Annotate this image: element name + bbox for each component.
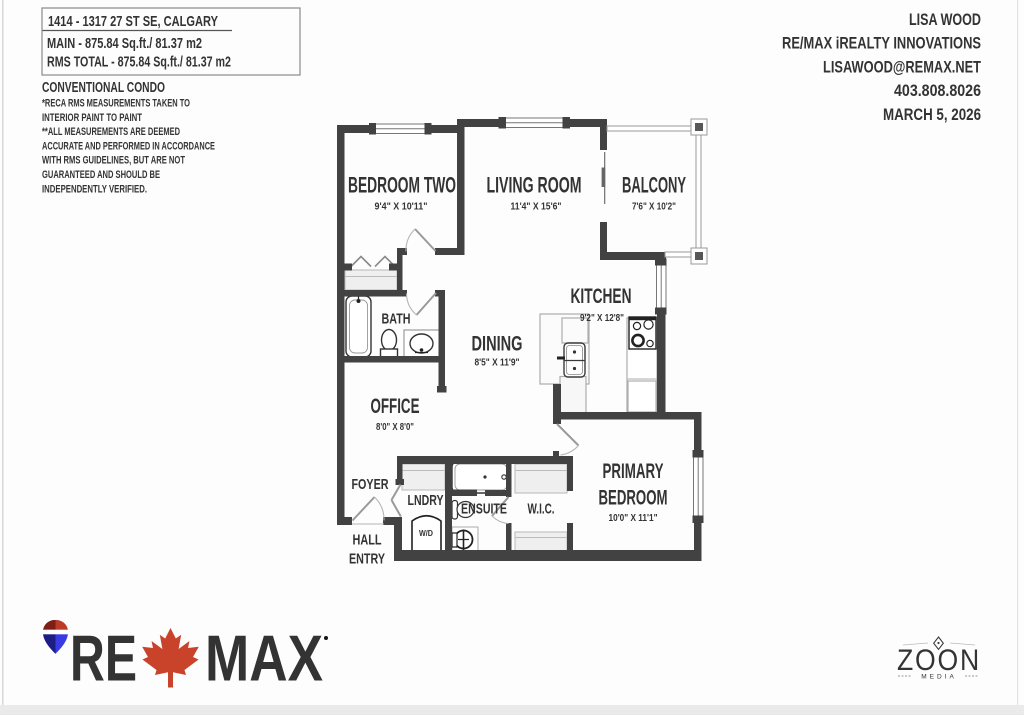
svg-text:BEDROOM TWO: BEDROOM TWO [348, 173, 456, 198]
svg-text:1414 - 1317 27 ST SE, CALGARY: 1414 - 1317 27 ST SE, CALGARY [48, 13, 218, 30]
svg-text:ENSUITE: ENSUITE [461, 501, 507, 518]
svg-text:HALL: HALL [353, 532, 382, 549]
svg-text:INTERIOR PAINT TO PAINT: INTERIOR PAINT TO PAINT [42, 112, 142, 124]
svg-text:PRIMARY: PRIMARY [603, 460, 664, 483]
svg-text:**ALL MEASUREMENTS ARE DEEMED: **ALL MEASUREMENTS ARE DEEMED [42, 126, 180, 138]
svg-text:OFFICE: OFFICE [371, 395, 420, 418]
svg-text:RE/MAX iREALTY INNOVATIONS: RE/MAX iREALTY INNOVATIONS [782, 34, 981, 53]
svg-text:GUARANTEED AND SHOULD BE: GUARANTEED AND SHOULD BE [42, 169, 160, 181]
svg-text:BEDROOM: BEDROOM [599, 487, 668, 510]
svg-text:WITH RMS GUIDELINES, BUT ARE N: WITH RMS GUIDELINES, BUT ARE NOT [42, 155, 185, 167]
svg-text:RE: RE [70, 622, 137, 694]
svg-text:403.808.8026: 403.808.8026 [894, 81, 981, 100]
svg-text:*RECA RMS MEASUREMENTS TAKEN T: *RECA RMS MEASUREMENTS TAKEN TO [42, 98, 190, 110]
svg-text:LIVING ROOM: LIVING ROOM [487, 173, 582, 198]
svg-text:MAIN - 875.84 Sq.ft./ 81.37 m2: MAIN - 875.84 Sq.ft./ 81.37 m2 [47, 36, 202, 52]
svg-text:ENTRY: ENTRY [349, 551, 385, 568]
svg-text:W/D: W/D [419, 528, 433, 538]
svg-text:7'6" X 10'2": 7'6" X 10'2" [632, 201, 676, 213]
svg-text:ZOON: ZOON [897, 644, 981, 677]
svg-text:8'0" X 8'0": 8'0" X 8'0" [376, 421, 414, 433]
svg-text:W.I.C.: W.I.C. [528, 501, 555, 518]
svg-text:KITCHEN: KITCHEN [571, 285, 632, 308]
svg-text:MAX: MAX [205, 622, 323, 694]
svg-text:LISA WOOD: LISA WOOD [909, 10, 981, 29]
svg-text:LNDRY: LNDRY [408, 492, 444, 509]
svg-text:LISAWOOD@REMAX.NET: LISAWOOD@REMAX.NET [823, 57, 981, 76]
svg-text:8'5" X 11'9": 8'5" X 11'9" [475, 357, 520, 369]
svg-text:DINING: DINING [472, 333, 523, 356]
svg-text:10'0" X 11'1": 10'0" X 11'1" [609, 512, 658, 524]
svg-text:ACCURATE AND PERFORMED IN ACCO: ACCURATE AND PERFORMED IN ACCORDANCE [42, 140, 215, 152]
svg-text:CONVENTIONAL CONDO: CONVENTIONAL CONDO [42, 80, 165, 96]
svg-text:9'2" X 12'8": 9'2" X 12'8" [580, 312, 624, 324]
svg-text:BALCONY: BALCONY [622, 173, 686, 198]
svg-text:RMS TOTAL - 875.84 Sq.ft./ 81.: RMS TOTAL - 875.84 Sq.ft./ 81.37 m2 [47, 55, 231, 71]
svg-text:FOYER: FOYER [352, 476, 389, 493]
svg-text:BATH: BATH [382, 311, 411, 328]
svg-text:11'4" X 15'6": 11'4" X 15'6" [511, 201, 562, 213]
svg-text:9'4" X 10'11": 9'4" X 10'11" [375, 201, 428, 213]
svg-text:MEDIA: MEDIA [921, 674, 957, 681]
svg-text:INDEPENDENTLY VERIFIED.: INDEPENDENTLY VERIFIED. [42, 183, 147, 195]
svg-text:MARCH 5, 2026: MARCH 5, 2026 [883, 105, 981, 124]
